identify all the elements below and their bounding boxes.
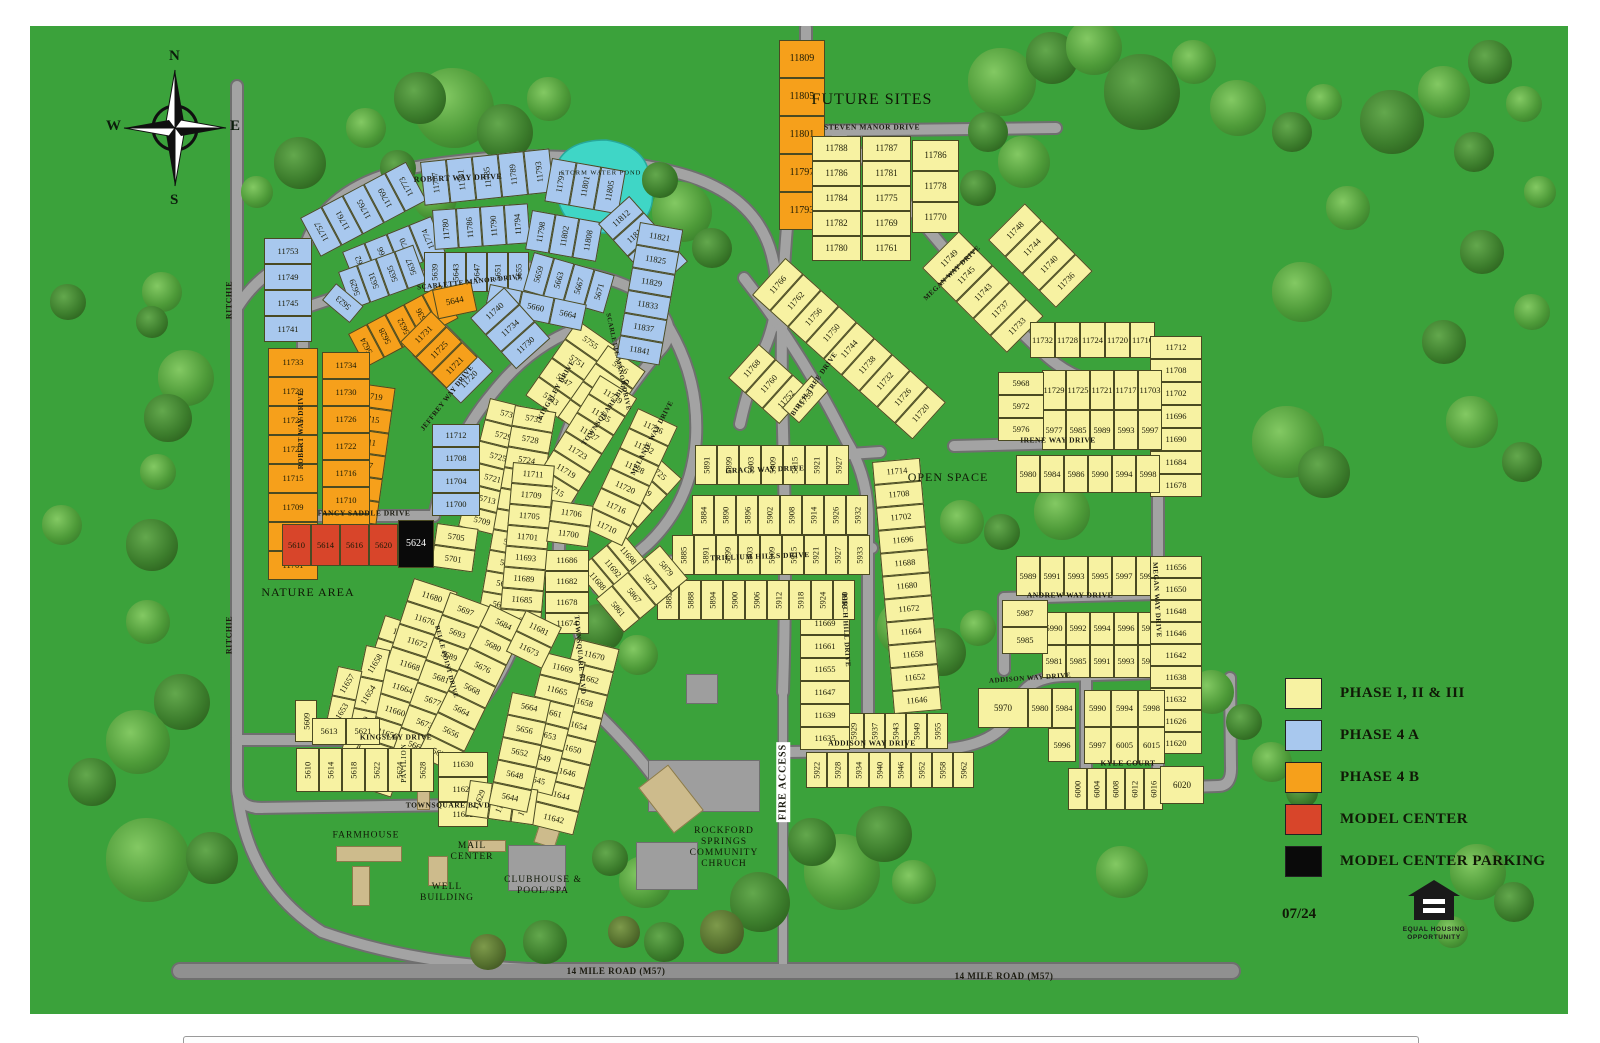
tree	[394, 72, 446, 124]
lot-number: 11825	[645, 254, 667, 266]
lot-number: 11749	[278, 273, 299, 282]
lot-cell: 11778	[912, 171, 959, 202]
tree	[1210, 80, 1266, 136]
lot-number: 5934	[854, 762, 863, 779]
lot-number: 11730	[515, 335, 536, 355]
lot-cell: 5926	[824, 495, 846, 535]
lot-number: 11743	[972, 282, 993, 303]
lot-number: 5985	[1070, 657, 1087, 666]
townsquare-label-1: TOWNSQUARE BLVD	[406, 802, 490, 811]
lot-cluster-arc-fancy: 57055701	[431, 523, 479, 572]
lot-number: 11753	[278, 247, 299, 256]
farmhouse-label: FARMHOUSE	[333, 831, 400, 842]
site-plan-page: 1180911805118011179711793117881178611784…	[0, 0, 1600, 1043]
lot-number: 11798	[534, 221, 546, 243]
tree	[618, 635, 658, 675]
lot-number: 11676	[413, 612, 436, 627]
lot-cell: 11781	[862, 161, 911, 186]
lot-number: 11710	[596, 519, 619, 536]
lot-number: 11658	[366, 652, 384, 674]
lot-cell: 11725	[1066, 370, 1090, 410]
lot-number: 5972	[1013, 402, 1030, 411]
lot-number: 11761	[875, 244, 897, 253]
tree	[274, 137, 326, 189]
lot-cell: 5908	[780, 495, 802, 535]
tree	[592, 840, 628, 876]
lot-cluster-steven-col-2: 1178711781117751176911761	[862, 136, 911, 261]
lot-number: 11729	[1044, 386, 1065, 395]
lot-cell: 5914	[802, 495, 824, 535]
lot-number: 5987	[1017, 609, 1034, 618]
lot-number: 11726	[336, 415, 357, 424]
kingsley-label-1: KINGSLEY DRIVE	[360, 734, 432, 743]
lot-cluster-addison-southwest-row: 59225928593459405946595259585962	[806, 752, 974, 788]
lot-number: 11788	[825, 144, 847, 153]
lot-number: 5652	[510, 746, 528, 758]
lot-number: 5631	[366, 271, 380, 290]
farmhouse-building-1	[336, 846, 402, 862]
lot-cell: 11715	[268, 464, 318, 493]
lot-number: 11672	[406, 635, 429, 650]
tree	[1306, 84, 1342, 120]
lot-number: 11789	[507, 164, 518, 186]
lot-number: 11632	[1166, 695, 1187, 704]
lot-cell: 5972	[998, 395, 1044, 418]
tree	[1460, 230, 1504, 274]
lot-cell: 5958	[932, 752, 953, 788]
lot-cell: 11678	[545, 592, 589, 613]
tree	[1514, 294, 1550, 330]
lot-cell: 11784	[812, 186, 861, 211]
tree	[186, 832, 238, 884]
compass-west: W	[106, 118, 121, 135]
14-mile-label-1: 14 MILE ROAD (M57)	[567, 966, 666, 976]
tree	[1502, 442, 1542, 482]
lot-number: 11761	[333, 209, 350, 231]
lot-number: 5994	[1116, 704, 1133, 713]
lot-number: 11710	[336, 496, 357, 505]
lot-number: 5990	[1089, 704, 1106, 713]
lot-cluster-addison-5970: 5970	[978, 688, 1028, 728]
lot-cluster-andrew-south-row-1: 59905992599459965998	[1042, 612, 1162, 645]
lot-cell: 5993	[1114, 645, 1138, 678]
lot-cell: 11717	[1114, 370, 1138, 410]
lot-number: 11690	[1166, 435, 1187, 444]
tree	[1272, 112, 1312, 152]
lot-number: 5906	[752, 592, 761, 609]
lot-cell: 11639	[800, 704, 850, 727]
lot-number: 5628	[418, 762, 427, 779]
clubhouse-label: CLUBHOUSE & POOL/SPA	[504, 875, 582, 897]
legend-phase-4b: PHASE 4 B	[1285, 762, 1546, 792]
lot-cell: 5962	[953, 752, 974, 788]
lot-cell: 5888	[679, 580, 701, 620]
lot-number: 5955	[933, 723, 942, 740]
ritchie-label-2: RITCHIE	[224, 616, 233, 654]
lot-cell: 11749	[264, 264, 312, 290]
lot-cell: 5986	[1064, 455, 1088, 493]
kyle-court-label: KYLE COURT	[1101, 760, 1156, 769]
lot-number: 5997	[1142, 426, 1159, 435]
lot-number: 11808	[582, 229, 594, 251]
irene-way-label: IRENE WAY DRIVE	[1020, 437, 1096, 446]
lot-cluster-arc-d2: 1170611700	[546, 500, 593, 547]
lot-cell: 11647	[800, 681, 850, 704]
lot-cell: 11712	[1150, 336, 1202, 359]
lot-number: 5693	[448, 626, 467, 640]
lot-number: 11778	[924, 182, 946, 191]
lot-number: 5952	[917, 762, 926, 779]
tree	[1226, 704, 1262, 740]
tree	[106, 818, 190, 902]
lot-number: 11673	[518, 641, 541, 658]
lot-number: 11712	[1166, 343, 1187, 352]
legend-model-center-parking-label: MODEL CENTER PARKING	[1340, 853, 1546, 870]
lot-number: 5991	[1044, 572, 1061, 581]
legend: PHASE I, II & IIIPHASE 4 APHASE 4 BMODEL…	[1285, 678, 1546, 888]
lot-number: 11646	[1166, 629, 1187, 638]
lot-number: 11704	[446, 477, 467, 486]
lot-number: 6016	[1149, 781, 1158, 798]
lot-number: 5664	[520, 701, 538, 713]
lot-number: 5985	[1017, 636, 1034, 645]
lot-number: 11765	[355, 198, 372, 220]
lot-cell: 5922	[806, 752, 827, 788]
tree	[642, 162, 678, 198]
lot-number: 11780	[825, 244, 847, 253]
lot-number: 11740	[1038, 254, 1059, 275]
lot-number: 5991	[1094, 657, 1111, 666]
lot-number: 5996	[1118, 624, 1135, 633]
lot-number: 5656	[442, 724, 461, 739]
lot-number: 5644	[445, 294, 464, 307]
open-space-label: OPEN SPACE	[908, 471, 989, 485]
lot-cell: 5906	[745, 580, 767, 620]
lot-number: 11626	[1166, 717, 1187, 726]
lot-number: 11829	[641, 276, 663, 288]
lot-number: 5994	[1094, 624, 1111, 633]
lot-number: 11708	[888, 489, 910, 499]
tree	[1454, 132, 1494, 172]
eho-text-line1: EQUAL HOUSING	[1403, 926, 1466, 933]
lot-number: 5943	[891, 723, 900, 740]
lot-number: 11787	[875, 144, 897, 153]
lot-number: 6005	[1116, 741, 1133, 750]
tree	[68, 758, 116, 806]
lot-number: 11658	[902, 650, 924, 660]
lot-number: 11805	[604, 179, 616, 201]
lot-cell: 11769	[862, 211, 911, 236]
lot-cell: 5927	[826, 535, 848, 575]
lot-number: 11770	[924, 213, 946, 222]
lot-number: 5977	[1046, 426, 1063, 435]
lot-number: 11748	[1004, 220, 1025, 241]
lot-number: 11737	[989, 299, 1010, 320]
lot-cell: 11686	[545, 550, 589, 571]
lot-cluster-kyle-row-1: 599059945998	[1084, 690, 1165, 727]
lot-number: 11720	[614, 479, 637, 496]
lot-number: 11775	[875, 194, 897, 203]
lot-cell: 11775	[862, 186, 911, 211]
lot-number: 11733	[283, 358, 304, 367]
legend-phase-4a-swatch	[1285, 720, 1322, 751]
addison-way-label-2: ADDISON WAY DRIVE	[828, 740, 915, 749]
lot-cluster-irene-west-col: 596859725976	[998, 372, 1044, 441]
lot-number: 11639	[815, 711, 836, 720]
lot-number: 11693	[515, 553, 537, 563]
church-label: ROCKFORD SPRINGS COMMUNITY CHRUCH	[690, 826, 759, 870]
lot-number: 11660	[384, 703, 407, 718]
lot-cell: 11734	[322, 352, 370, 379]
lot-number: 11801	[790, 130, 815, 140]
lot-number: 11726	[892, 386, 912, 407]
lot-cell: 5932	[846, 495, 868, 535]
legend-model-center-parking-swatch	[1285, 846, 1322, 877]
lot-number: 5990	[1092, 470, 1109, 479]
lot-number: 11654	[359, 683, 377, 705]
lot-number: 5884	[699, 507, 708, 524]
lot-cell: 11745	[264, 290, 312, 316]
lot-cell: 5613	[312, 718, 346, 745]
lot-number: 5894	[708, 592, 717, 609]
lot-cell: 5610	[282, 524, 311, 566]
lot-number: 5940	[875, 762, 884, 779]
lot-number: 11719	[555, 461, 577, 479]
lot-cell: 11729	[1042, 370, 1066, 410]
lot-cluster-irene-south-row: 598059845986599059945998	[1016, 455, 1160, 493]
ritchie-label-1: RITCHIE	[224, 281, 233, 319]
lot-number: 5997	[1116, 572, 1133, 581]
lot-number: 5902	[765, 507, 774, 524]
lot-cell: 11655	[800, 658, 850, 681]
lot-number: 11686	[557, 556, 578, 565]
lot-number: 5933	[855, 547, 864, 564]
lot-cell: 5997	[1138, 410, 1162, 450]
lot-cell: 11642	[1150, 644, 1202, 666]
tree	[940, 500, 984, 544]
lot-cell: 5994	[1112, 455, 1136, 493]
lot-cell: 6004	[1087, 768, 1106, 810]
lot-cell: 5900	[723, 580, 745, 620]
lot-number: 11745	[278, 299, 299, 308]
tree	[984, 514, 1020, 550]
lot-number: 11773	[397, 175, 414, 197]
lot-cell: 11726	[322, 406, 370, 433]
lot-cell: 5940	[869, 752, 890, 788]
lot-cell: 11780	[432, 208, 459, 250]
lot-number: 5622	[372, 762, 381, 779]
lot-number: 5993	[1068, 572, 1085, 581]
lot-number: 5914	[809, 507, 818, 524]
lot-number: 11732	[874, 370, 894, 391]
lot-number: 11647	[815, 688, 836, 697]
bottom-scrollbar[interactable]	[183, 1036, 1419, 1043]
lot-number: 5993	[1118, 657, 1135, 666]
fire-access-label: FIRE ACCESS	[776, 742, 790, 822]
lot-number: 11709	[283, 503, 304, 512]
lot-cell: 5921	[805, 445, 827, 485]
lot-number: 11656	[1166, 563, 1187, 572]
lot-number: 11784	[825, 194, 847, 203]
lot-number: 5927	[834, 457, 843, 474]
lot-number: 5663	[552, 271, 565, 290]
tree	[700, 910, 744, 954]
lot-cell: 5970	[978, 688, 1028, 728]
lot-cell: 11720	[1105, 322, 1130, 358]
tree	[608, 916, 640, 948]
lot-number: 11642	[543, 812, 565, 825]
lot-number: 11837	[633, 322, 655, 334]
lot-cell: 5884	[692, 495, 714, 535]
lot-number: 11717	[1116, 386, 1137, 395]
lot-cell: 5952	[911, 752, 932, 788]
lot-number: 5635	[385, 264, 399, 283]
lot-number: 5624	[406, 539, 426, 549]
lot-number: 11648	[1166, 607, 1187, 616]
lot-number: 11786	[464, 217, 474, 238]
lot-cell: 5968	[998, 372, 1044, 395]
lot-number: 11786	[924, 151, 946, 160]
lot-cluster-blue-west-col: 11753117491174511741	[264, 238, 312, 342]
lot-cell: 6000	[1068, 768, 1087, 810]
lot-number: 11724	[1082, 336, 1103, 345]
lot-number: 11728	[1057, 336, 1078, 345]
lot-cell: 5928	[827, 752, 848, 788]
lot-number: 11672	[898, 604, 920, 614]
lot-number: 5676	[473, 660, 492, 675]
lot-cluster-steven-col-1: 1178811786117841178211780	[812, 136, 861, 261]
lot-number: 5995	[1092, 572, 1109, 581]
lot-cell: 6008	[1106, 768, 1125, 810]
mail-center-label: MAIL CENTER	[451, 841, 494, 863]
lot-cell: 5624	[398, 520, 434, 568]
lot-number: 5643	[451, 264, 460, 281]
tree	[106, 710, 170, 774]
lot-cell: 11721	[268, 435, 318, 464]
lot-number: 11708	[446, 454, 467, 463]
lot-number: 11630	[453, 760, 474, 769]
lot-number: 11682	[557, 577, 578, 586]
lot-cell: 11721	[1090, 370, 1114, 410]
lot-cell: 11780	[812, 236, 861, 261]
lot-number: 11732	[1032, 336, 1053, 345]
lot-number: 11715	[283, 474, 304, 483]
lot-cell: 11786	[912, 140, 959, 171]
lot-cell: 11733	[268, 348, 318, 377]
lot-cell: 11730	[322, 379, 370, 406]
future-sites-label: FUTURE SITES	[812, 91, 933, 109]
legend-phase-1-2-3: PHASE I, II & III	[1285, 678, 1546, 708]
lot-cluster-model-center-lots: 5610561456165620	[282, 524, 398, 566]
lot-cell: 11732	[1030, 322, 1055, 358]
lot-cluster-jeffrey-blue-col: 11712117081170411700	[432, 424, 480, 516]
tree	[1494, 882, 1534, 922]
lot-number: 11725	[1068, 386, 1089, 395]
tree	[692, 228, 732, 268]
tree	[1298, 446, 1350, 498]
lot-number: 11757	[312, 221, 329, 243]
lot-number: 11722	[336, 442, 357, 451]
lot-cell: 5990	[1084, 690, 1111, 727]
lot-number: 11702	[890, 512, 912, 522]
lot-number: 5660	[526, 302, 544, 314]
lot-number: 11833	[637, 299, 659, 311]
lot-cell: 5984	[1040, 455, 1064, 493]
lot-number: 5671	[593, 282, 606, 301]
lot-number: 5970	[994, 704, 1012, 713]
lot-number: 6012	[1130, 781, 1139, 798]
lot-number: 5990	[1046, 624, 1063, 633]
lot-number: 11700	[557, 528, 579, 539]
lot-number: 5637	[404, 257, 418, 276]
tree	[1506, 86, 1542, 122]
lot-number: 5680	[484, 638, 503, 653]
tree	[241, 176, 273, 208]
tree	[998, 136, 1050, 188]
lot-number: 11786	[825, 169, 847, 178]
lot-number: 11780	[440, 218, 450, 239]
tree	[788, 818, 836, 866]
tree	[1360, 90, 1424, 154]
lot-number: 5639	[430, 264, 439, 281]
lot-number: 5667	[573, 276, 586, 295]
lot-cell: 11787	[862, 136, 911, 161]
lot-number: 11664	[391, 681, 414, 696]
lot-number: 5728	[521, 434, 539, 445]
lot-number: 5926	[831, 507, 840, 524]
lot-cell: 5997	[1112, 556, 1136, 596]
lot-number: 5998	[1140, 470, 1157, 479]
equal-housing-logo: EQUAL HOUSING OPPORTUNITY	[1398, 880, 1470, 943]
lot-cell: 11708	[432, 447, 480, 470]
tree	[856, 806, 912, 862]
lot-number: 5664	[452, 703, 471, 718]
lot-cell: 5616	[340, 524, 369, 566]
lot-number: 11665	[546, 684, 568, 697]
lot-number: 11744	[1021, 237, 1042, 258]
tree	[144, 394, 192, 442]
lot-number: 5628	[377, 326, 392, 345]
lot-cell: 11712	[432, 424, 480, 447]
lot-cell: 5992	[1066, 612, 1090, 645]
lot-cell: 6012	[1125, 768, 1144, 810]
tree	[960, 610, 996, 646]
lot-number: 5684	[494, 616, 513, 631]
legend-model-center-label: MODEL CENTER	[1340, 811, 1468, 828]
lot-cell: 5991	[1090, 645, 1114, 678]
tree	[50, 284, 86, 320]
lot-cell: 11790	[480, 205, 507, 247]
lot-number: 11670	[583, 649, 605, 662]
lot-number: 11661	[815, 642, 836, 651]
lot-number: 11689	[513, 574, 535, 584]
tree	[346, 108, 386, 148]
lot-number: 11721	[1092, 386, 1113, 395]
lot-number: 5918	[796, 592, 805, 609]
lot-cluster-steven-col-3: 117861177811770	[912, 140, 959, 233]
well-building-label: WELL BUILDING	[420, 882, 474, 904]
lot-number: 11708	[1166, 366, 1187, 375]
lot-number: 11681	[528, 621, 551, 638]
lot-cell: 11646	[892, 687, 942, 714]
far mhouse-building-2	[352, 866, 370, 906]
legend-model-center: MODEL CENTER	[1285, 804, 1546, 834]
compass-north: N	[169, 48, 180, 65]
compass-south: S	[170, 192, 178, 209]
lot-number: 6004	[1092, 781, 1101, 798]
lot-cell: 5614	[311, 524, 340, 566]
lot-cell: 5933	[848, 535, 870, 575]
